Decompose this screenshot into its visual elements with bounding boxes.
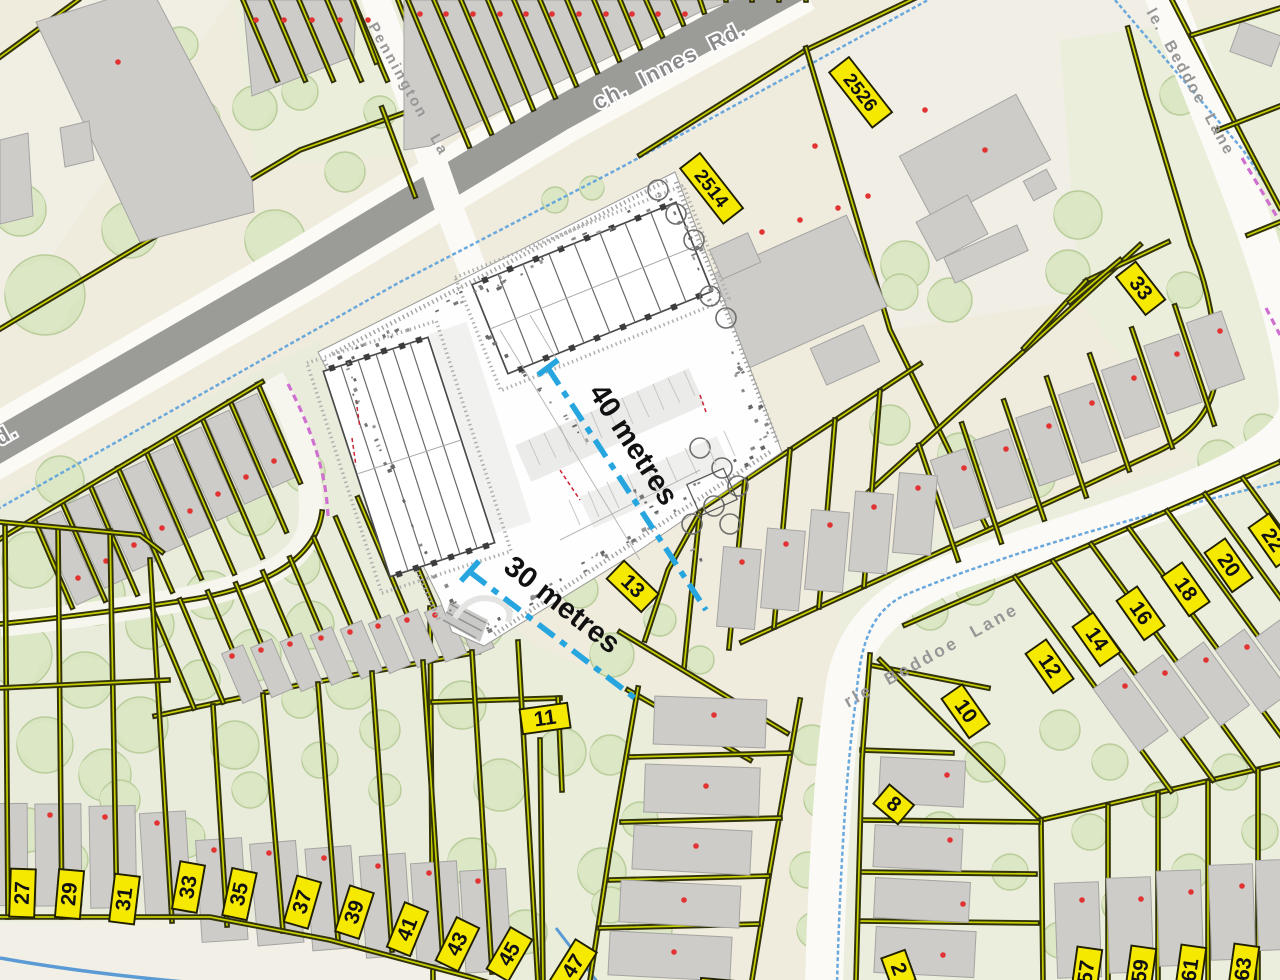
svg-text:61: 61 [1177, 957, 1203, 980]
svg-text:29: 29 [57, 881, 82, 906]
svg-text:31: 31 [112, 886, 138, 912]
svg-text:27: 27 [11, 881, 35, 905]
svg-text:59: 59 [1127, 958, 1153, 980]
svg-text:11: 11 [532, 706, 558, 732]
svg-text:63: 63 [1230, 956, 1256, 980]
svg-text:33: 33 [175, 874, 202, 901]
svg-text:57: 57 [1073, 959, 1099, 980]
